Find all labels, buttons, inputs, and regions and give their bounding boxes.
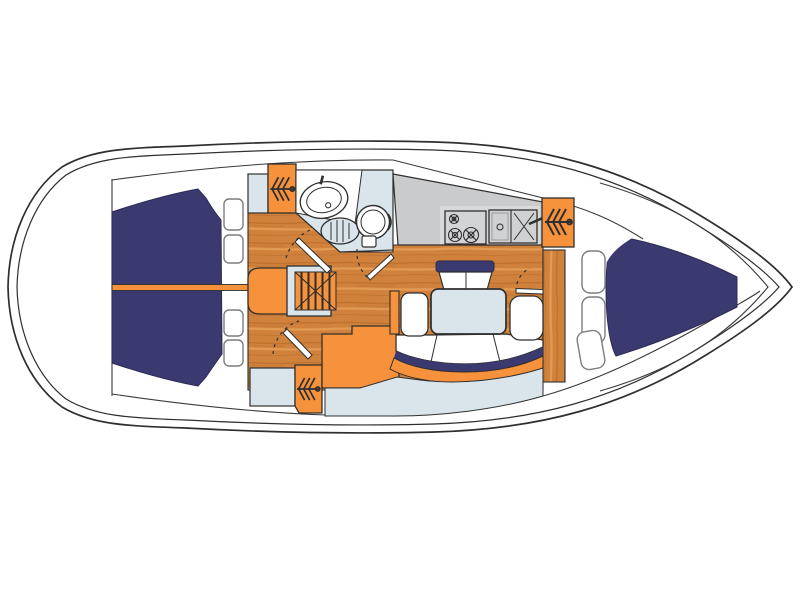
salon-table [431,289,506,334]
forward-bulkhead-wood [543,250,565,382]
forward-hanging-locker [542,198,574,247]
bench-back-navy [436,261,494,272]
hull-window [224,235,243,263]
locker-shelf [250,368,295,406]
nav-station-module [322,326,399,388]
stairs-side [248,268,290,314]
toilet-pump [362,236,376,247]
galley-stove [445,211,486,244]
hull-window [224,199,243,230]
aft-berth-center-seam [112,285,248,291]
hull-window [224,340,243,366]
boat-floor-plan [0,0,800,600]
counter-end [390,291,399,334]
shower-seat-grate [321,218,359,244]
boat-floor-plan-canvas [0,0,800,600]
berth-cushion [582,251,605,293]
hull-window [224,310,243,336]
port-seat [401,293,428,336]
starboard-seat [510,296,543,340]
companionway-stairs [248,266,336,316]
locker-shelf [248,174,268,213]
starboard-aft-locker [250,365,322,413]
stairs-ladder [295,272,336,310]
